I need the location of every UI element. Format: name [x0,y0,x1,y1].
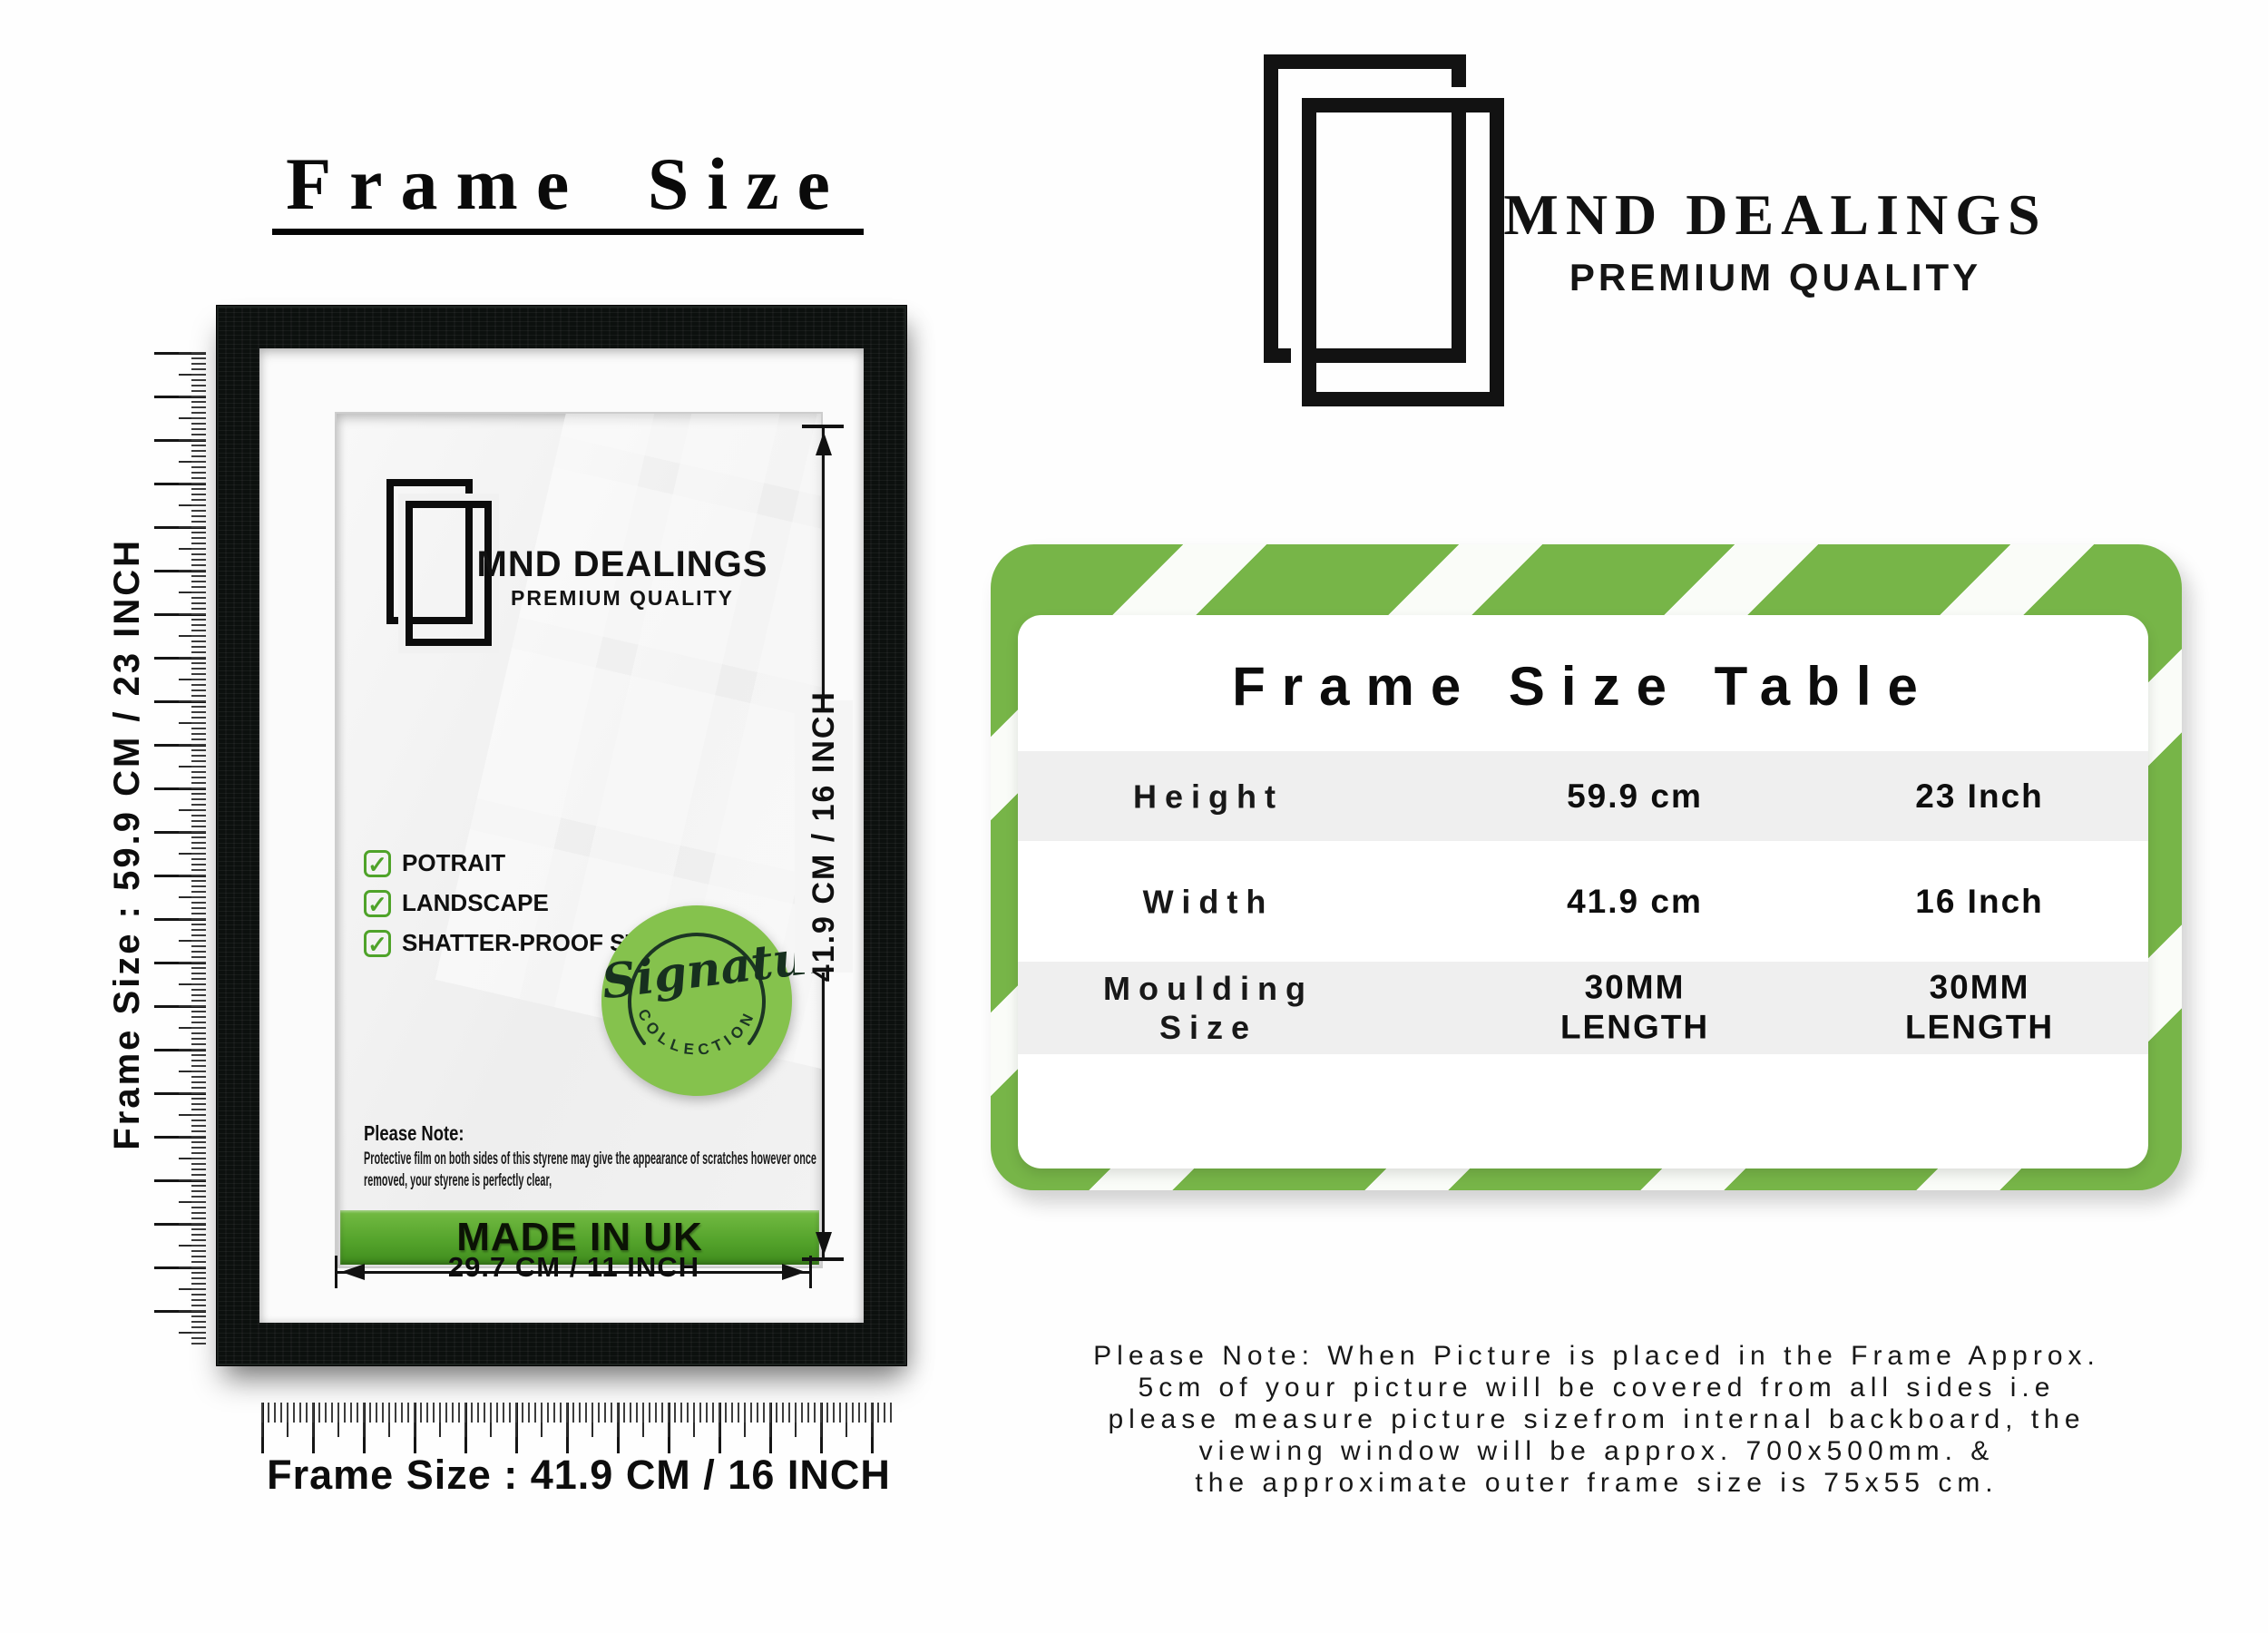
frame-mat: MND DEALINGS PREMIUM QUALITY ✓ POTRAIT ✓… [259,348,864,1323]
frame-opening: MND DEALINGS PREMIUM QUALITY ✓ POTRAIT ✓… [335,412,823,1268]
row-metric: 30MM LENGTH [1444,968,1825,1049]
signature-collection-badge: COLLECTION Signature [601,905,792,1096]
brand-tagline: PREMIUM QUALITY [1499,256,2052,299]
footnote-line: the approximate outer frame size is 75x5… [993,1467,2200,1499]
svg-text:COLLECTION: COLLECTION [634,1006,759,1059]
size-table-card: Frame Size Table Height 59.9 cm 23 Inch … [1018,615,2148,1169]
title-underline [272,229,864,235]
row-metric: 41.9 cm [1444,881,1825,921]
table-row: Height 59.9 cm 23 Inch [1018,751,2148,841]
row-metric: 59.9 cm [1444,776,1825,816]
insert-note-line: removed, your styrene is perfectly clear… [364,1170,819,1192]
row-imperial: 16 Inch [1825,881,2134,921]
frame-insert-brand: MND DEALINGS [473,544,772,585]
footnote-line: viewing window will be approx. 700x500mm… [993,1435,2200,1467]
arrow-up-icon [816,432,832,455]
checkbox-checked-icon: ✓ [364,890,391,917]
frame-insert-tagline: PREMIUM QUALITY [473,586,772,611]
footnote: Please Note: When Picture is placed in t… [993,1340,2200,1499]
horizontal-ruler [261,1403,894,1454]
footnote-line: please measure picture sizefrom internal… [993,1403,2200,1435]
row-imperial: 23 Inch [1825,776,2134,816]
vertical-ruler [154,352,206,1346]
frame-width-label: Frame Size : 41.9 CM / 16 INCH [261,1452,896,1499]
checkbox-checked-icon: ✓ [364,850,391,877]
inner-height-label: 41.9 CM / 16 INCH [795,700,853,973]
inner-width-label: 29.7 CM / 11 INCH [337,1251,811,1284]
arrow-down-icon [816,1232,832,1256]
checkbox-checked-icon: ✓ [364,930,391,957]
table-row: Width 41.9 cm 16 Inch [1018,841,2148,962]
badge-arc-text: COLLECTION [634,1006,759,1059]
insert-note-line: Protective film on both sides of this st… [364,1149,819,1170]
feature-label: POTRAIT [402,849,505,877]
table-row: Moulding Size 30MM LENGTH 30MM LENGTH [1018,962,2148,1054]
insert-note-body: Protective film on both sides of this st… [364,1149,819,1192]
feature-potrait: ✓ POTRAIT [364,849,505,877]
insert-note-heading: Please Note: [364,1121,464,1146]
row-label: Height [1018,777,1399,816]
size-table-panel: Frame Size Table Height 59.9 cm 23 Inch … [991,544,2182,1190]
table-title: Frame Size Table [1018,655,2148,718]
row-imperial: 30MM LENGTH [1825,968,2134,1049]
footnote-line: Please Note: When Picture is placed in t… [993,1340,2200,1372]
footnote-line: 5cm of your picture will be covered from… [993,1372,2200,1403]
logo-rect-front [1302,98,1504,406]
brand-logo-icon [1264,54,1509,410]
brand-name: MND DEALINGS [1499,181,2052,249]
row-label: Moulding Size [1018,969,1399,1047]
row-label: Width [1018,882,1399,921]
feature-landscape: ✓ LANDSCAPE [364,889,549,917]
feature-label: LANDSCAPE [402,889,549,917]
page-title: Frame Size [272,142,862,227]
